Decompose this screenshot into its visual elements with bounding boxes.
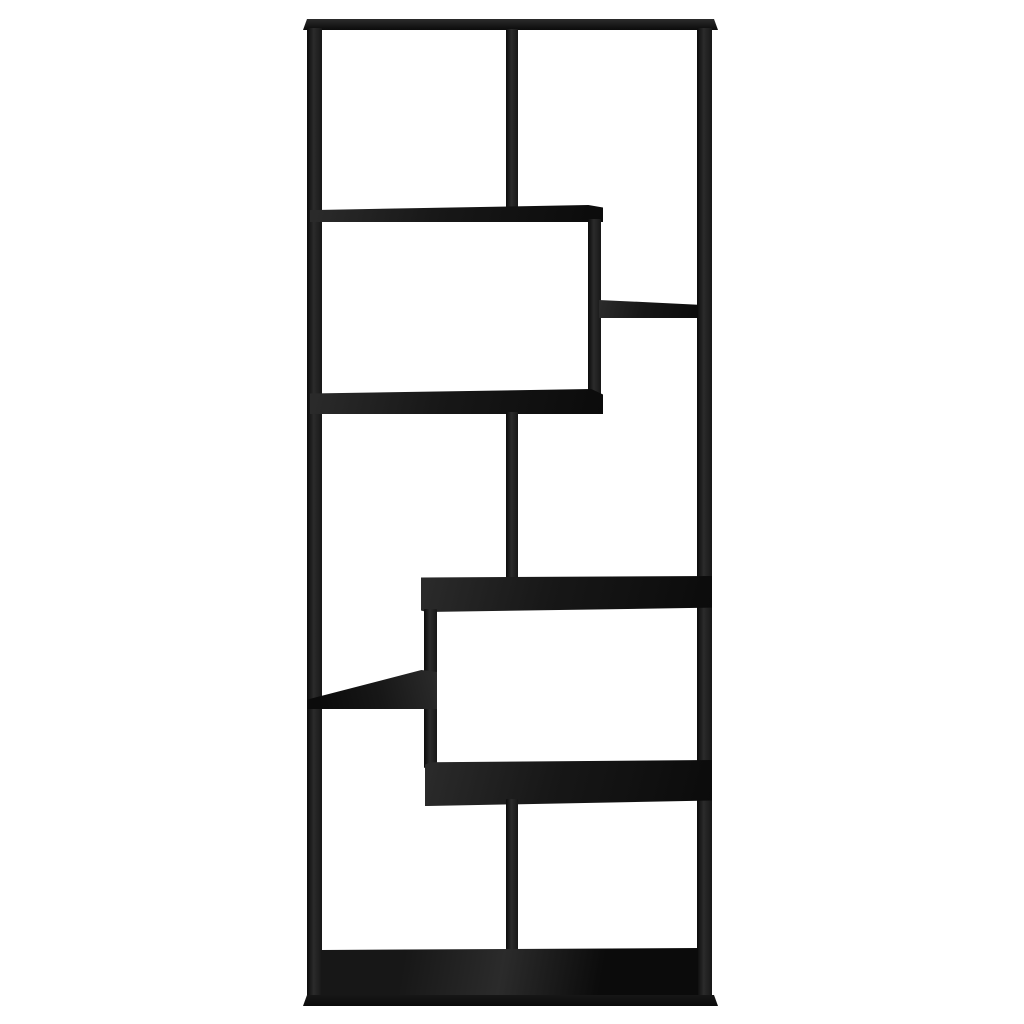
- shelf-row1-left: [310, 205, 603, 222]
- shelf-right-upper: [599, 299, 698, 318]
- right-side-panel: [697, 28, 712, 999]
- divider-middle-center: [506, 412, 518, 580]
- product-image-bookcase: [0, 0, 1024, 1024]
- shelf-lower-wide: [425, 760, 712, 806]
- shelf-left-small: [307, 670, 437, 709]
- base-panel: [303, 995, 718, 1006]
- interior-floor: [321, 947, 698, 997]
- left-side-panel: [307, 28, 322, 999]
- divider-top-center: [506, 29, 518, 210]
- shelf-middle-wide: [421, 576, 712, 612]
- shelf-row2-left: [310, 389, 603, 414]
